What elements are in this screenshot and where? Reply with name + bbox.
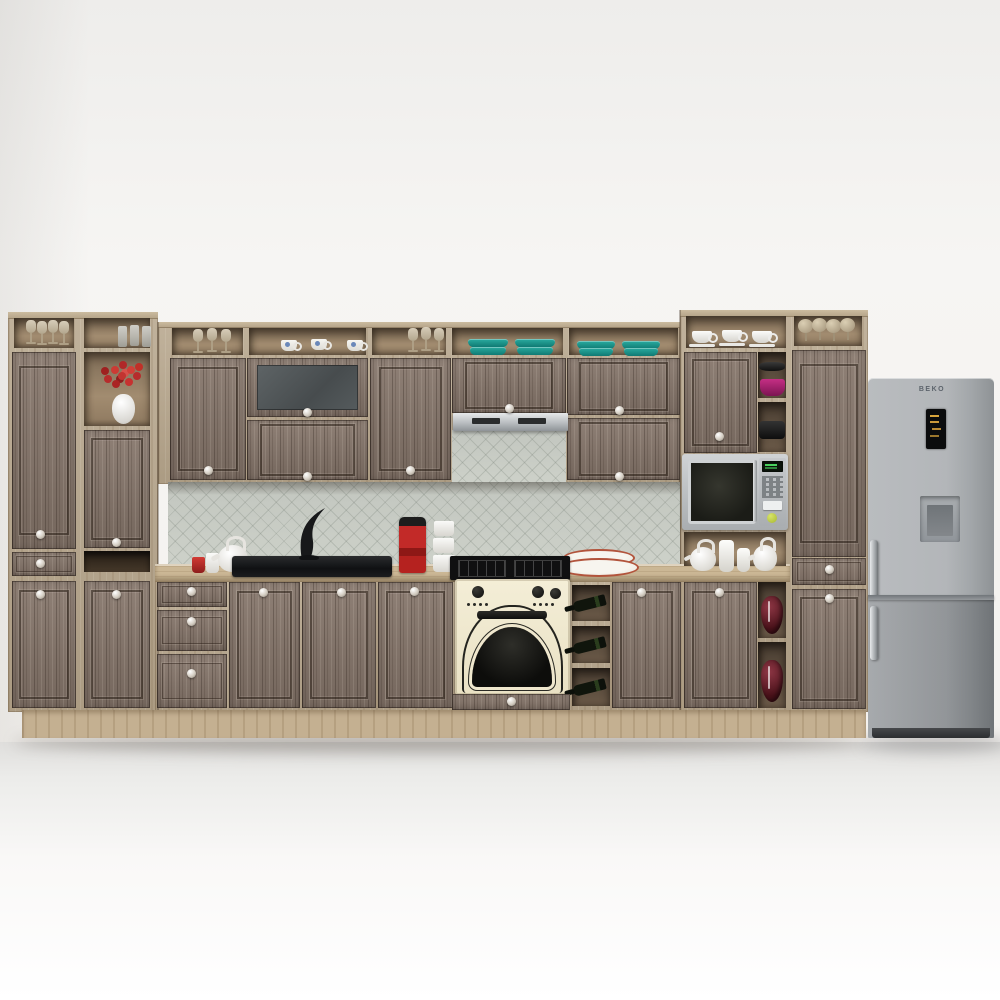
door-knob xyxy=(303,408,312,417)
tall-pantry-door xyxy=(792,350,866,557)
wall-cabinet-door xyxy=(170,358,246,480)
dark-plate-stack xyxy=(759,421,785,439)
base-cabinet-door xyxy=(84,581,150,708)
base-cabinet-door xyxy=(684,582,757,708)
backsplash-hood-area xyxy=(452,430,566,484)
door-knob xyxy=(615,406,624,415)
wall-cabinet-shadow xyxy=(168,482,680,495)
coffee-machine xyxy=(399,517,426,573)
microwave-control-panel xyxy=(759,458,786,526)
cabinet-door xyxy=(84,430,150,548)
door-knob xyxy=(715,432,724,441)
base-cabinet-door xyxy=(612,582,681,708)
drawer-knob xyxy=(187,587,196,596)
hood-filter xyxy=(518,418,546,424)
oven-handle xyxy=(477,611,547,619)
door-knob xyxy=(715,588,724,597)
drawer-front xyxy=(157,654,227,708)
base-cabinet-door xyxy=(12,581,76,708)
shelf-niche xyxy=(84,318,150,348)
drawer-knob xyxy=(507,697,516,706)
wall-cabinet-lift-door xyxy=(567,418,680,480)
kitchen-render: BEKO xyxy=(0,0,1000,1000)
drawer-knob xyxy=(187,669,196,678)
fridge-handle xyxy=(870,540,878,598)
base-cabinet-door xyxy=(378,582,453,708)
microwave-door xyxy=(688,460,756,524)
base-cabinet-door xyxy=(792,589,866,709)
wall-cabinet-door xyxy=(370,358,451,480)
wall-cabinet-lift-door xyxy=(567,358,680,415)
door-knob xyxy=(36,590,45,599)
door-knob xyxy=(112,590,121,599)
door-knob xyxy=(825,594,834,603)
fridge-display xyxy=(926,409,946,449)
tall-cabinet-door xyxy=(12,352,76,549)
magenta-bowl xyxy=(760,379,785,396)
sink-cabinet-door xyxy=(229,582,300,708)
hood-filter xyxy=(472,418,500,424)
drawer-knob xyxy=(36,559,45,568)
glass-pane xyxy=(257,365,358,410)
door-knob xyxy=(112,538,121,547)
plinth xyxy=(22,710,866,738)
drawer-knob xyxy=(187,617,196,626)
gas-cooktop xyxy=(450,556,570,580)
white-vase xyxy=(112,394,135,424)
designer-faucet xyxy=(294,508,334,560)
floor xyxy=(0,742,1000,1000)
door-knob xyxy=(259,588,268,597)
door-knob xyxy=(406,466,415,475)
water-dispenser xyxy=(920,496,960,542)
sink-cabinet-door xyxy=(302,582,376,708)
door-knob xyxy=(637,588,646,597)
fridge-base xyxy=(872,728,990,738)
door-knob xyxy=(36,530,45,539)
drawer-knob xyxy=(825,565,834,574)
door-knob xyxy=(303,472,312,481)
door-knob xyxy=(337,588,346,597)
freezer-handle xyxy=(870,606,878,660)
range-hood xyxy=(453,413,568,431)
microwave xyxy=(682,454,788,530)
door-knob xyxy=(410,587,419,596)
fridge: BEKO xyxy=(868,378,994,738)
fridge-brand-logo: BEKO xyxy=(908,386,956,393)
wall-cabinet-lift-door xyxy=(247,420,368,480)
red-flower-bouquet xyxy=(118,372,126,380)
door-knob xyxy=(505,404,514,413)
freezer-section xyxy=(868,597,994,738)
door-knob xyxy=(204,466,213,475)
red-cup xyxy=(192,557,205,573)
door-knob xyxy=(615,472,624,481)
retro-oven xyxy=(455,579,570,695)
fridge-door-divider xyxy=(868,595,994,600)
open-slot xyxy=(84,551,150,572)
black-plate xyxy=(759,362,785,371)
